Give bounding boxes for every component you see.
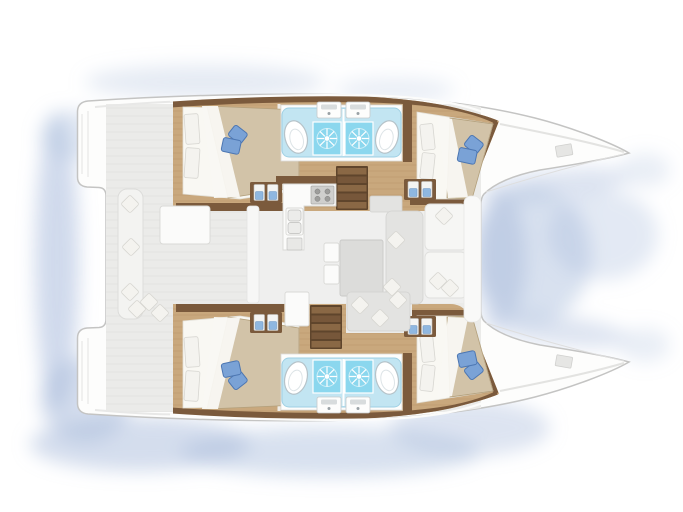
floor-plan-canvas bbox=[0, 0, 683, 512]
pillow bbox=[420, 123, 436, 150]
dinette-table bbox=[340, 240, 383, 296]
saloon-cabinet bbox=[285, 292, 309, 326]
pillow bbox=[420, 364, 436, 391]
stbd-bow-hatch bbox=[555, 355, 573, 369]
stbd-wet-rooms bbox=[281, 354, 402, 413]
dinette-seat bbox=[324, 243, 339, 262]
catamaran-floor-plan bbox=[0, 0, 683, 512]
port-bow-hatch bbox=[555, 144, 573, 158]
pillow bbox=[184, 148, 200, 179]
port-aft-entry-steps bbox=[250, 182, 282, 203]
pillow bbox=[184, 371, 200, 402]
cockpit-table bbox=[160, 206, 210, 244]
galley-appliance bbox=[287, 238, 302, 250]
dinette-seat bbox=[324, 265, 339, 284]
port-head-bulkhead bbox=[403, 104, 412, 162]
galley-back-trim bbox=[276, 176, 336, 184]
sliding-door-track bbox=[247, 206, 259, 303]
pillow bbox=[420, 152, 436, 179]
pillow bbox=[184, 114, 200, 145]
pillow bbox=[420, 335, 436, 362]
stbd-head-bulkhead bbox=[403, 353, 412, 411]
stbd-aft-entry-steps bbox=[250, 312, 282, 333]
saloon-front-sill bbox=[464, 196, 481, 322]
stbd-aft-cabin-trim bbox=[176, 303, 284, 312]
pillow bbox=[184, 337, 200, 368]
port-fwd-entry-steps bbox=[404, 179, 436, 200]
stbd-companionway bbox=[310, 305, 342, 349]
port-wet-rooms bbox=[281, 102, 402, 161]
saloon-side-locker bbox=[370, 196, 402, 212]
port-companionway bbox=[336, 166, 368, 210]
